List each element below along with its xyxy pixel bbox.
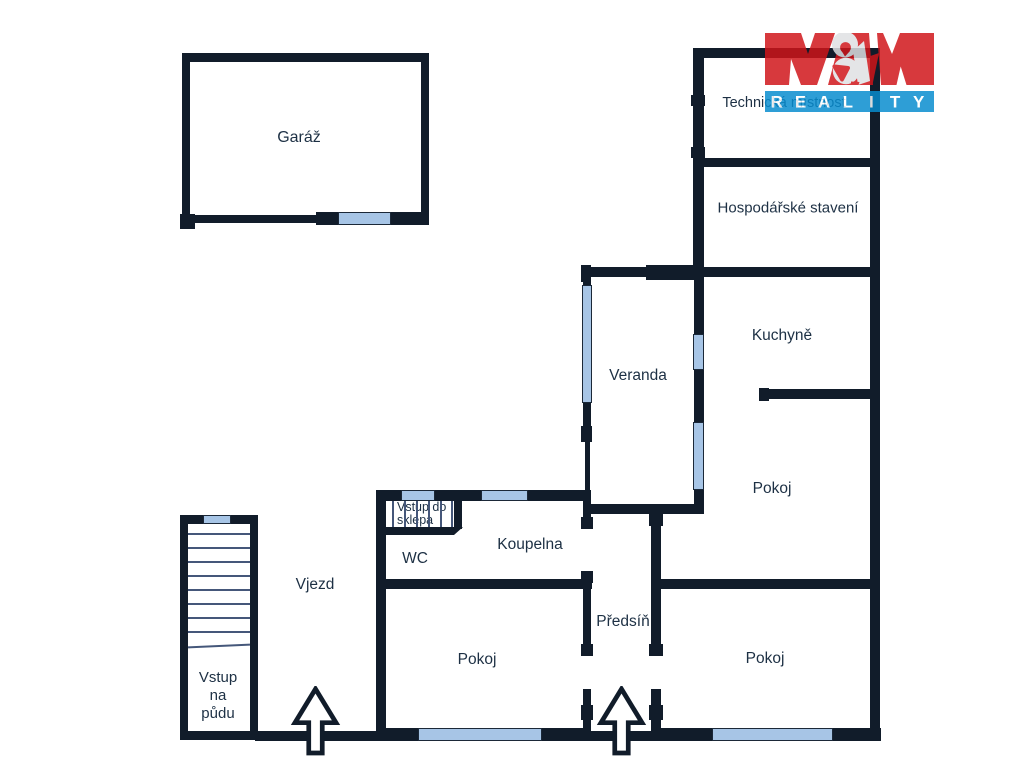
svg-text:A: A: [818, 93, 830, 112]
svg-text:I: I: [869, 93, 874, 112]
svg-text:E: E: [795, 93, 806, 112]
svg-text:R: R: [771, 93, 783, 112]
svg-text:Y: Y: [913, 93, 925, 112]
svg-text:T: T: [890, 93, 901, 112]
svg-text:L: L: [843, 93, 853, 112]
